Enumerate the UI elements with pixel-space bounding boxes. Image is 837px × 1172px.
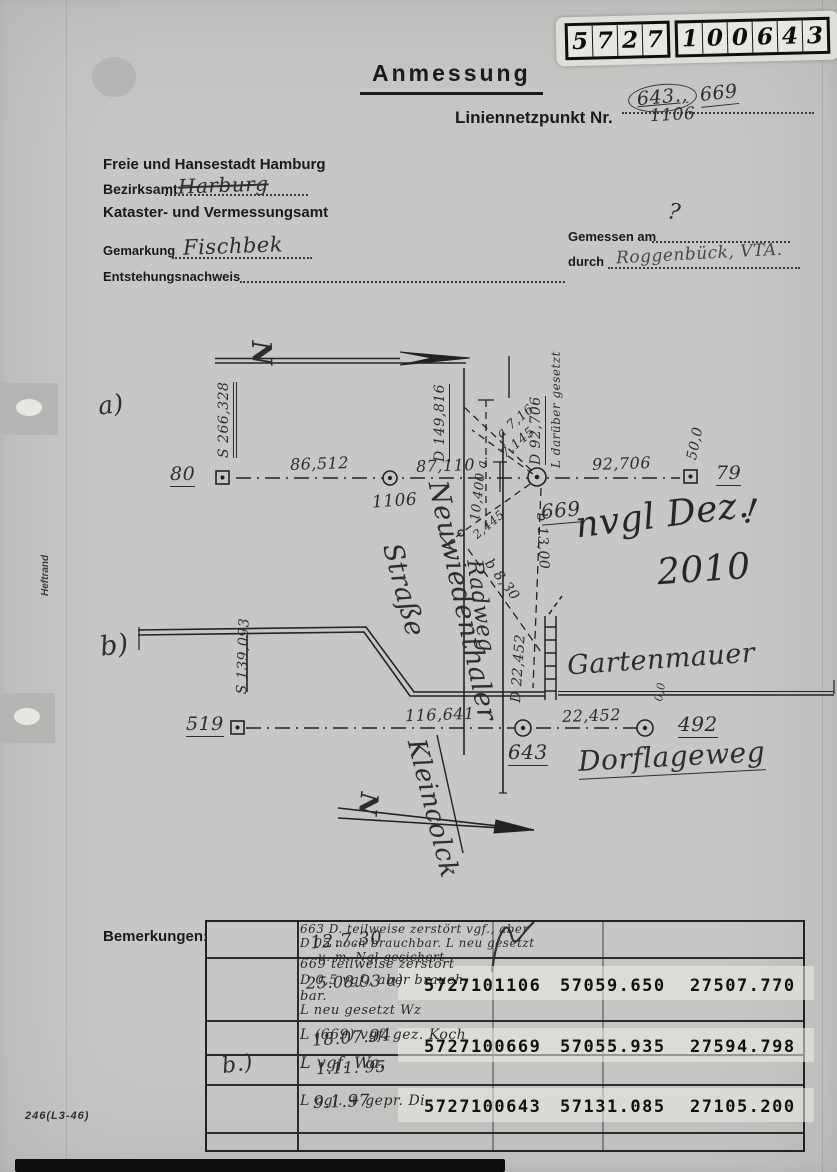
point-label-80: 80 — [170, 463, 195, 487]
point-label-492: 492 — [678, 712, 718, 738]
remark-line: D 05 noch brauchbar. L neu gesetzt — [300, 936, 535, 950]
rotated-label-d149: D 149,816 — [432, 384, 450, 462]
remarks-label: Bemerkungen: — [103, 928, 208, 945]
note-2010: 2010 — [656, 546, 752, 593]
remark-line: L neu gesetzt Wz — [300, 1004, 421, 1018]
remark-line: L vgf. Wa. — [300, 1056, 385, 1070]
distance-669-79: 92,706 — [592, 453, 652, 474]
coordinate-y: 27594.798 — [690, 1037, 796, 1057]
coordinate-x: 57059.650 — [560, 976, 666, 996]
distance-643-492: 22,452 — [562, 705, 622, 726]
point-id-printed: 5727100643 — [424, 1097, 541, 1117]
table-row-line — [207, 1132, 803, 1134]
north-letter-top: N — [245, 340, 277, 366]
point-id-printed: 5727100669 — [424, 1037, 541, 1057]
table-row-line — [207, 1084, 803, 1086]
coordinate-y: 27105.200 — [690, 1097, 796, 1117]
sketch-label-b: b) — [98, 628, 131, 663]
north-letter-bottom: N — [353, 791, 384, 817]
table-row-line — [207, 957, 803, 959]
point-label-519: 519 — [186, 713, 224, 737]
remark-line: bar. — [300, 990, 327, 1004]
point-label-1106: 1106 — [371, 489, 418, 512]
coordinate-x: 57131.085 — [560, 1097, 666, 1117]
offset-b1300: b 13,00 — [533, 512, 552, 570]
distance-519-643: 116,641 — [405, 704, 475, 725]
point-label-79: 79 — [716, 462, 741, 486]
distance-1106-669: 87,110 — [416, 455, 476, 476]
distance-80-1106: 86,512 — [290, 453, 350, 474]
rotated-label-s139: S 139,093 — [234, 618, 253, 695]
point-id-printed: 5727101106 — [424, 976, 541, 996]
point-label-643: 643 — [508, 740, 548, 766]
table-row-line — [207, 1020, 803, 1022]
sketch-label-a: a) — [96, 388, 125, 420]
remark-line: L ogl. + gepr. Di — [300, 1094, 425, 1108]
remark-side-label-b: b.) — [220, 1050, 254, 1079]
rotated-label-s266: S 266,328 — [216, 382, 237, 458]
garden-wall-symbol — [545, 596, 562, 700]
remark-line: 663 D. teilweise zerstört vgf., aber — [300, 922, 529, 936]
remark-line: 669 teilweise zerstört — [300, 958, 455, 972]
coordinate-x: 57055.935 — [560, 1037, 666, 1057]
rotated-label-l-daruber: L darüber gesetzt — [549, 351, 563, 468]
scanned-survey-form: Heftrand 246(L3-46) 5 7 2 7 1 0 0 6 4 3 … — [0, 0, 837, 1172]
coordinate-y: 27507.770 — [690, 976, 796, 996]
